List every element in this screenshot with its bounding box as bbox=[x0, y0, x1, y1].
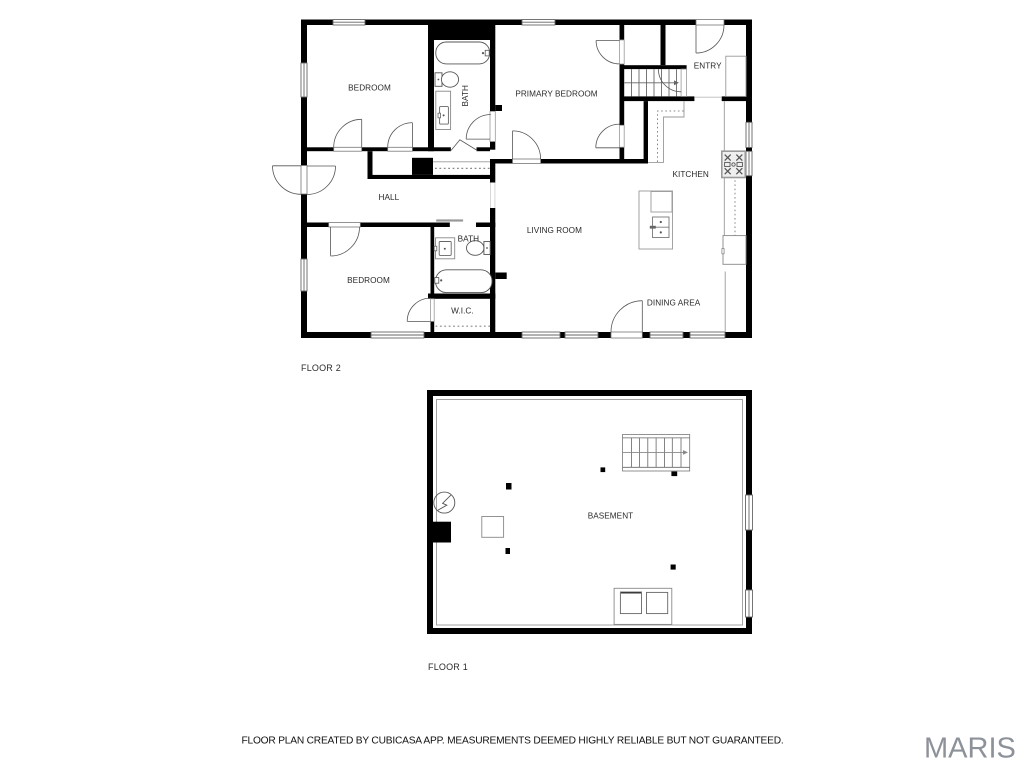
svg-text:BASEMENT: BASEMENT bbox=[588, 511, 633, 520]
svg-text:BATH: BATH bbox=[458, 234, 479, 243]
svg-text:BEDROOM: BEDROOM bbox=[348, 84, 391, 93]
svg-text:LIVING ROOM: LIVING ROOM bbox=[527, 226, 582, 235]
svg-text:FLOOR 2: FLOOR 2 bbox=[301, 363, 341, 373]
svg-text:MARIS: MARIS bbox=[924, 733, 1016, 765]
svg-text:DINING AREA: DINING AREA bbox=[647, 299, 701, 308]
svg-text:FLOOR PLAN CREATED BY CUBICASA: FLOOR PLAN CREATED BY CUBICASA APP. MEAS… bbox=[241, 736, 783, 747]
svg-text:ENTRY: ENTRY bbox=[694, 62, 722, 71]
svg-text:KITCHEN: KITCHEN bbox=[673, 170, 709, 179]
svg-text:W.I.C.: W.I.C. bbox=[451, 306, 474, 315]
svg-text:BATH: BATH bbox=[461, 85, 470, 106]
svg-text:PRIMARY BEDROOM: PRIMARY BEDROOM bbox=[515, 89, 597, 98]
svg-text:FLOOR 1: FLOOR 1 bbox=[428, 662, 468, 672]
svg-text:BEDROOM: BEDROOM bbox=[347, 276, 390, 285]
svg-text:HALL: HALL bbox=[379, 193, 400, 202]
